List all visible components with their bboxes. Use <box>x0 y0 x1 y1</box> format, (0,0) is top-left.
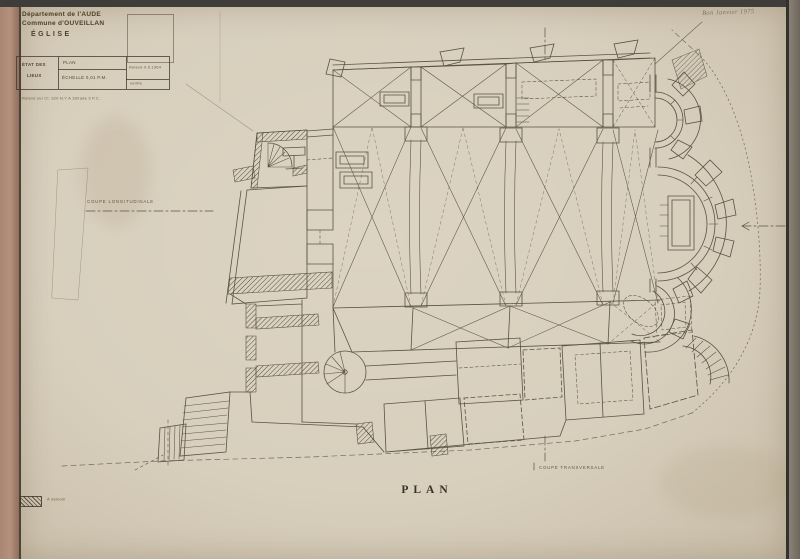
legend-label: À démolir <box>47 497 66 502</box>
backing-right-strip <box>789 0 800 559</box>
scanned-plan-sheet: Département de l'AUDE Commune d'OUVEILLA… <box>0 0 800 559</box>
west-annex <box>52 129 333 304</box>
table-header-line1: ÉTAT DES <box>22 62 46 67</box>
section-longitudinale-label: COUPE LONGITUDINALE <box>87 199 154 204</box>
nave-and-north-chapels <box>307 40 660 308</box>
drawing-title: PLAN <box>392 484 462 496</box>
reference-note: Relevé sur Cl. 320 N.Y A 18/rade 3 P.C. <box>22 96 100 101</box>
verify-cell: vérifié <box>130 81 142 86</box>
title-table: ÉTAT DES LIEUX PLAN ÉCHELLE 0,01 P.M. Re… <box>16 56 170 90</box>
legend-hatch-swatch <box>20 496 42 507</box>
department-label: Département de l'AUDE <box>22 11 101 18</box>
table-divider <box>58 57 59 89</box>
table-divider <box>126 57 127 89</box>
date-cell: Relevé 9.6.1964 <box>129 65 161 70</box>
southwest-rooms <box>230 294 363 427</box>
doc-type-cell: PLAN <box>63 60 76 65</box>
section-transversale-label: COUPE TRANSVERSALE <box>539 465 605 470</box>
apse-chevet <box>618 72 736 352</box>
table-divider <box>126 79 169 80</box>
section-lines <box>86 28 792 470</box>
scale-cell: ÉCHELLE 0,01 P.M. <box>62 75 107 80</box>
building-label: ÉGLISE <box>31 31 72 38</box>
table-header-line2: LIEUX <box>27 73 42 78</box>
southwest-stairs <box>135 392 252 470</box>
south-range <box>302 296 729 456</box>
commune-label: Commune d'OUVEILLAN <box>22 20 104 27</box>
table-divider <box>58 69 126 70</box>
